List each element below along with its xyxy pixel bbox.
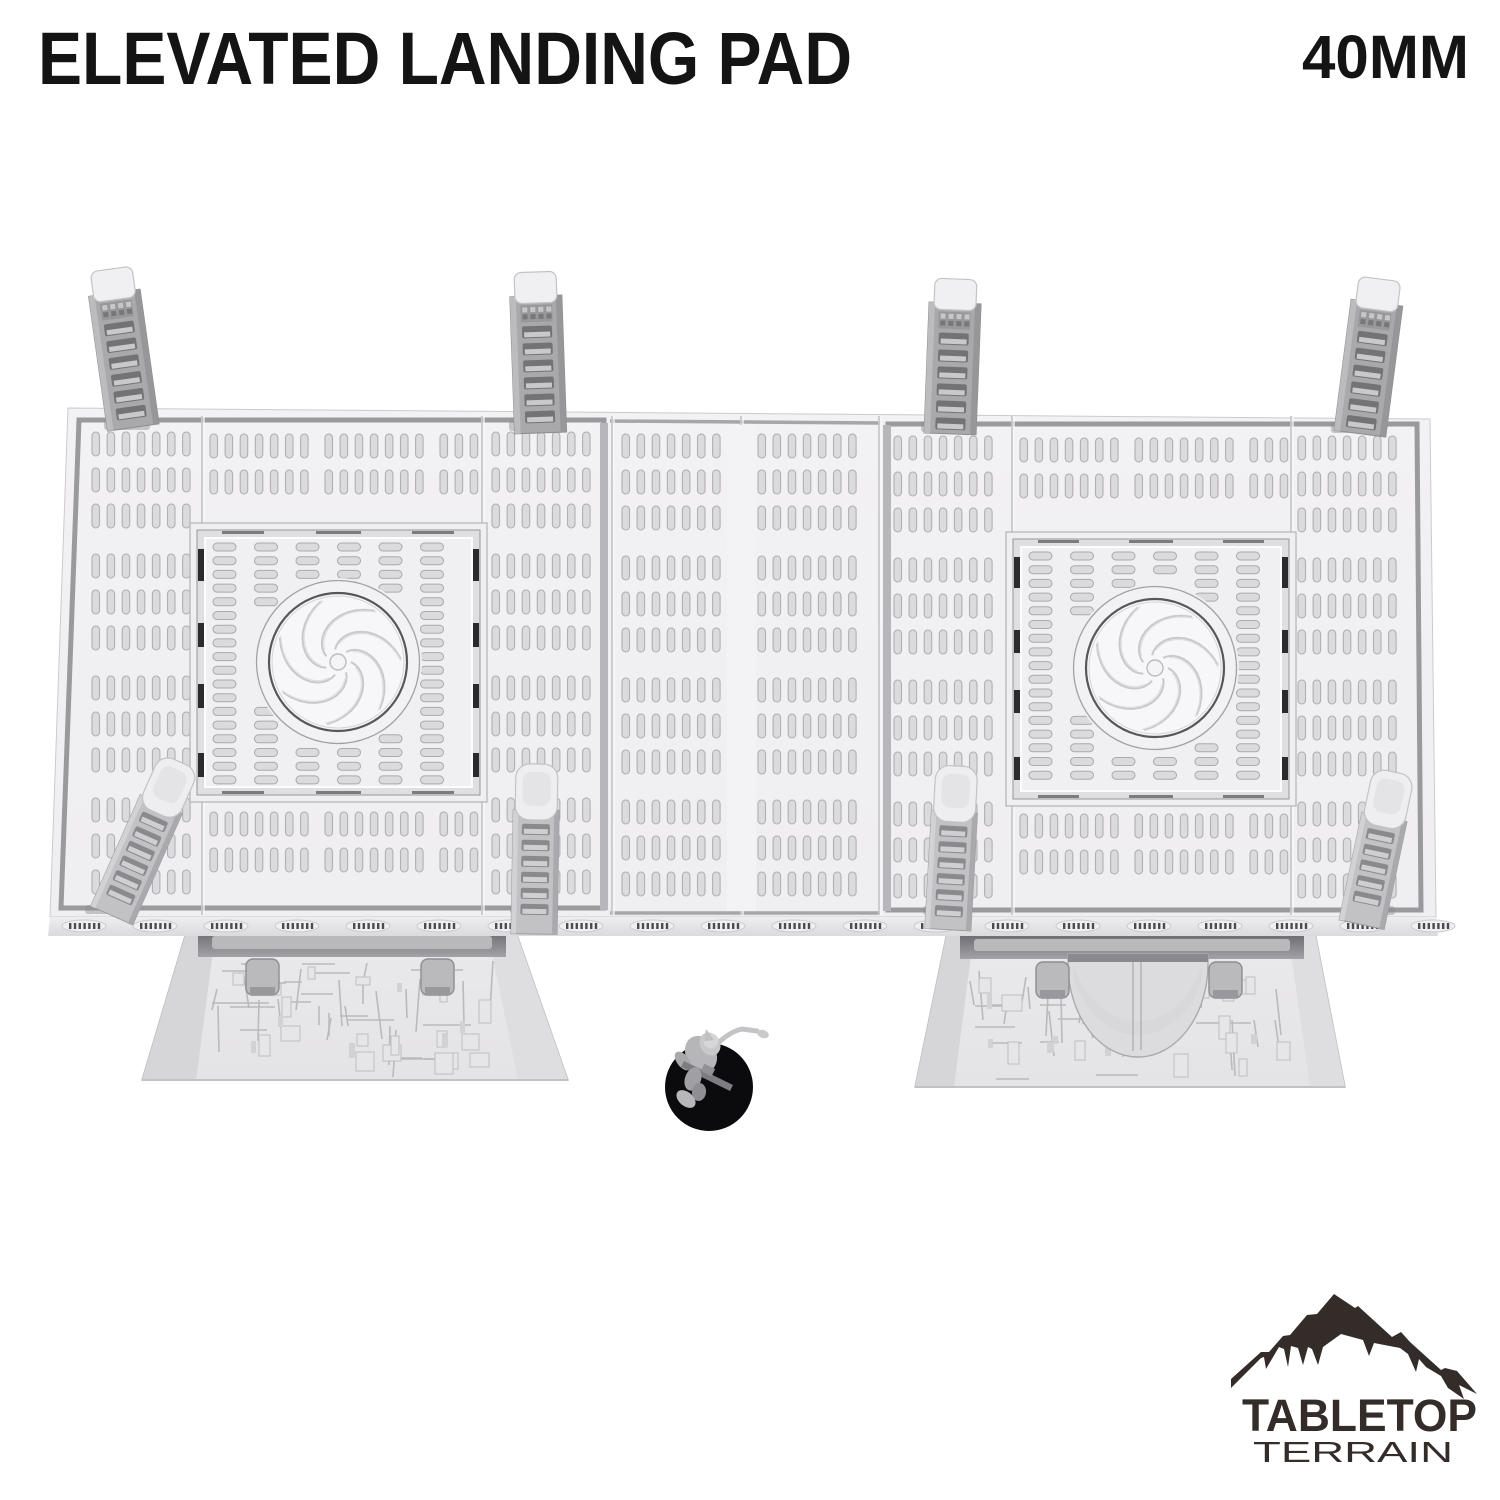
svg-text:40MM: 40MM (1302, 23, 1469, 91)
svg-text:ELEVATED LANDING PAD: ELEVATED LANDING PAD (38, 17, 852, 100)
svg-text:TABLETOP: TABLETOP (1242, 1390, 1477, 1441)
svg-text:TERRAIN: TERRAIN (1253, 1437, 1453, 1469)
